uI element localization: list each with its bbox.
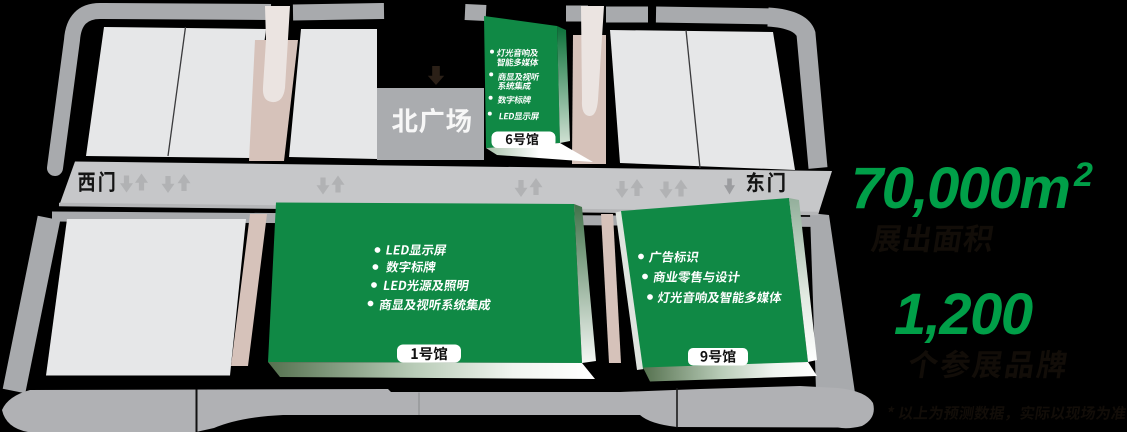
svg-text:1,200: 1,200 [894, 282, 1033, 347]
svg-text:70,000m: 70,000m [851, 156, 1069, 221]
svg-text:2: 2 [1073, 156, 1093, 194]
